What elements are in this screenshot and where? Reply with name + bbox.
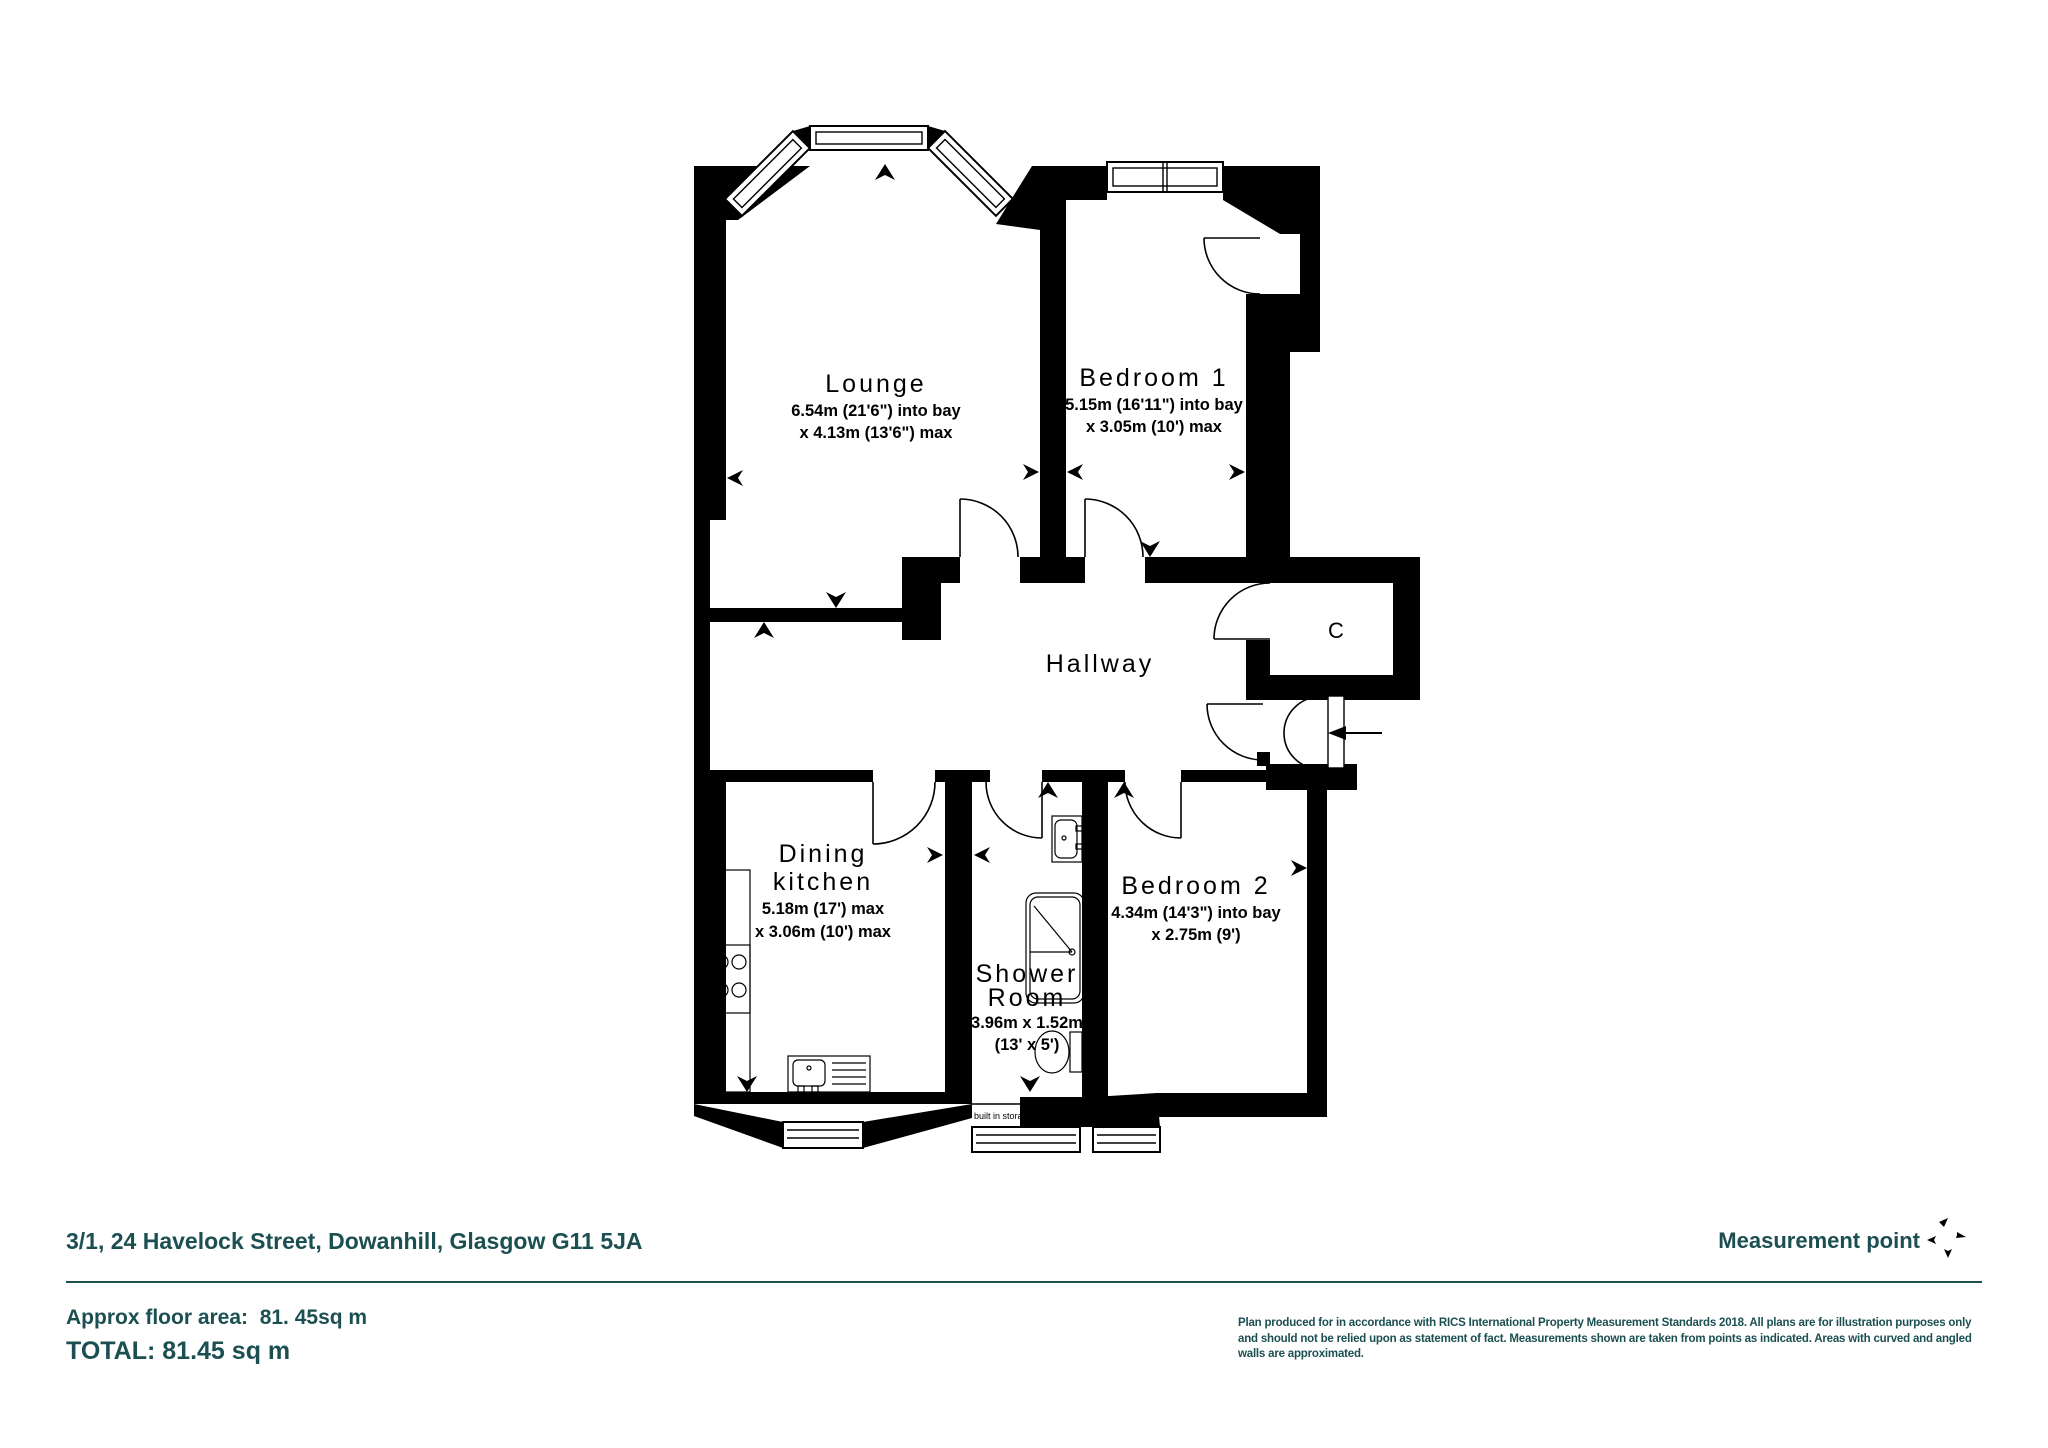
disclaimer: Plan produced for in accordance with RIC… — [1238, 1316, 1998, 1363]
shower-dim2: (13' x 5') — [995, 1036, 1060, 1054]
bedroom2-label: Bedroom 2 — [1121, 872, 1270, 900]
lounge-door — [960, 499, 1018, 557]
shower-label-2: Room — [988, 984, 1067, 1012]
storage-label: built in storage — [974, 1111, 1033, 1121]
total-floor-area: TOTAL: 81.45 sq m — [66, 1337, 290, 1366]
disclaimer-line-2: and should not be relied upon as stateme… — [1238, 1332, 1998, 1348]
measurement-point-label: Measurement point — [1690, 1228, 1920, 1254]
shower-dim1: 3.96m x 1.52m — [971, 1014, 1083, 1032]
entry-door-leaf-top — [1284, 697, 1320, 733]
kitchen-door — [873, 782, 935, 844]
lounge-dim1: 6.54m (21'6") into bay — [791, 402, 961, 420]
measurement-point-icon — [1924, 1216, 1972, 1264]
bedroom1-label: Bedroom 1 — [1079, 364, 1228, 392]
press-door — [1204, 238, 1260, 294]
bay-window-right — [928, 131, 1013, 216]
shower-door — [986, 782, 1042, 838]
kitchen-label-1: Dining — [779, 840, 868, 868]
footer-divider — [66, 1281, 1982, 1283]
floor-plan: Lounge 6.54m (21'6") into bay x 4.13m (1… — [680, 100, 1440, 1180]
bedroom2-dim2: x 2.75m (9') — [1151, 926, 1240, 944]
bedroom1-door — [1085, 499, 1143, 557]
cupboard-door — [1214, 583, 1270, 639]
bedroom1-press — [1260, 234, 1300, 294]
lounge-label: Lounge — [825, 370, 926, 398]
hallway-label: Hallway — [1046, 650, 1155, 678]
bedroom2-door — [1125, 782, 1181, 838]
kitchen-window — [783, 1122, 863, 1148]
vestibule-door — [1207, 704, 1263, 760]
lounge-dim2: x 4.13m (13'6") max — [799, 424, 953, 442]
bedroom1-dim1: 5.15m (16'11") into bay — [1065, 396, 1244, 414]
kitchen-dim2: x 3.06m (10') max — [755, 923, 892, 941]
kitchen-dim1: 5.18m (17') max — [762, 900, 885, 918]
bedroom1-dim2: x 3.05m (10') max — [1086, 418, 1223, 436]
bedroom2-window — [1093, 1127, 1160, 1152]
page: Lounge 6.54m (21'6") into bay x 4.13m (1… — [0, 0, 2048, 1448]
approx-floor-area: Approx floor area: 81. 45sq m — [66, 1306, 367, 1330]
bedroom1-window — [1107, 162, 1223, 192]
entry-door-leaf-bottom — [1284, 733, 1320, 769]
bedroom2-dim1: 4.34m (14'3") into bay — [1111, 904, 1281, 922]
disclaimer-line-1: Plan produced for in accordance with RIC… — [1238, 1316, 1998, 1332]
kitchen-label-2: kitchen — [773, 868, 873, 896]
disclaimer-line-3: walls are approximated. — [1238, 1347, 1998, 1363]
shower-window — [972, 1127, 1080, 1152]
cupboard-label: C — [1328, 618, 1346, 643]
property-address: 3/1, 24 Havelock Street, Dowanhill, Glas… — [66, 1228, 643, 1255]
